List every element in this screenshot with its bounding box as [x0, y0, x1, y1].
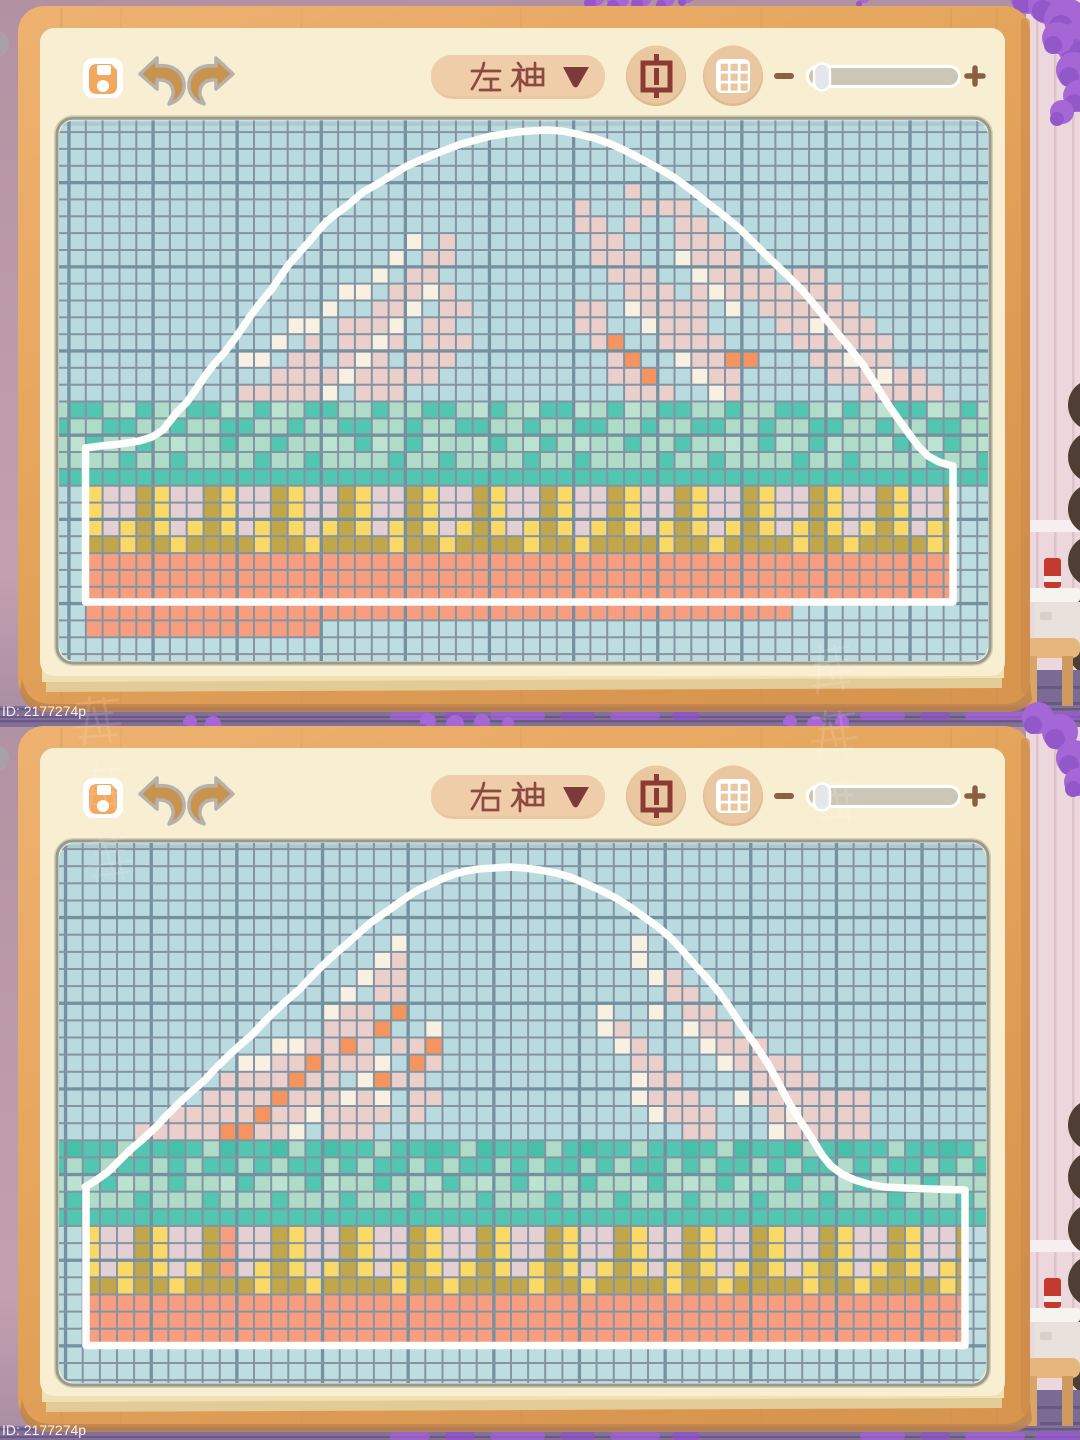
svg-text:ID: 2177274p: ID: 2177274p [2, 703, 86, 719]
svg-text:ID: 2177274p: ID: 2177274p [2, 1422, 86, 1438]
